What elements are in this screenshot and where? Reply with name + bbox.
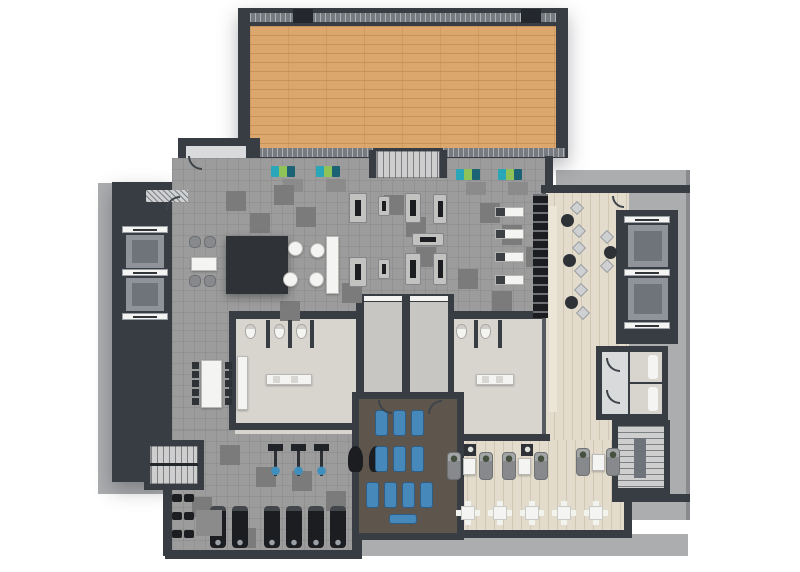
yoga-mat bbox=[402, 482, 415, 508]
table-chair bbox=[225, 371, 232, 378]
plant-table bbox=[464, 444, 476, 456]
dining-top-wall bbox=[452, 434, 550, 441]
bench-cube bbox=[287, 166, 295, 177]
weight-bench bbox=[495, 207, 524, 217]
yoga-mat bbox=[384, 482, 397, 508]
lounge-top-wall bbox=[541, 185, 690, 193]
machine-core bbox=[382, 201, 386, 211]
core-left-floor bbox=[364, 302, 402, 392]
dining-table bbox=[461, 506, 475, 520]
floor-tile bbox=[280, 301, 300, 321]
stretch-platform bbox=[226, 236, 288, 294]
shower-closet bbox=[237, 356, 248, 410]
lobby-table bbox=[604, 246, 617, 259]
yoga-mat bbox=[393, 446, 406, 472]
dumbbell bbox=[184, 494, 194, 502]
machine-core bbox=[382, 264, 386, 274]
table-chair bbox=[225, 362, 232, 369]
side-table bbox=[463, 458, 476, 475]
court-stair-wall-left bbox=[369, 150, 376, 178]
treadmill bbox=[286, 506, 302, 548]
cafe-table bbox=[288, 241, 303, 256]
wing-stair-rail bbox=[150, 463, 198, 466]
table-chair bbox=[225, 398, 232, 405]
elevator-car-pad bbox=[634, 231, 662, 261]
elevator-plate bbox=[122, 226, 168, 233]
stall-partition bbox=[266, 320, 270, 348]
dumbbell bbox=[172, 512, 182, 520]
dumbbell-rack bbox=[533, 194, 548, 318]
elevator-plate bbox=[122, 269, 168, 276]
elevator-plate bbox=[624, 322, 670, 329]
court-column-right bbox=[521, 9, 541, 23]
toilet bbox=[456, 324, 467, 339]
lounge-bench bbox=[549, 206, 557, 412]
stairwell-spine bbox=[634, 438, 646, 478]
stall-partition bbox=[450, 320, 454, 348]
yoga-mat bbox=[393, 410, 406, 436]
court-column-left bbox=[293, 9, 313, 23]
stall-partition bbox=[288, 320, 292, 348]
gym-bottom-wall bbox=[165, 550, 362, 559]
floor-tile bbox=[220, 445, 240, 465]
floor-plan bbox=[0, 0, 800, 572]
juice-counter bbox=[326, 236, 339, 294]
table-chair bbox=[225, 389, 232, 396]
yoga-mat bbox=[420, 482, 433, 508]
sink bbox=[482, 376, 489, 383]
sink bbox=[291, 376, 298, 383]
yoga-mat bbox=[375, 410, 388, 436]
machine-core bbox=[355, 200, 361, 216]
toilet bbox=[480, 324, 491, 339]
plant-table bbox=[521, 444, 533, 456]
bench-cube bbox=[464, 169, 472, 180]
spin-bike bbox=[268, 444, 283, 476]
bench-mat bbox=[326, 179, 346, 192]
court-floor bbox=[250, 26, 556, 148]
yoga-mat bbox=[366, 482, 379, 508]
bench-cube bbox=[279, 166, 287, 177]
bench-cube bbox=[456, 169, 464, 180]
side-table bbox=[592, 454, 605, 471]
bench-cube bbox=[472, 169, 480, 180]
chaise-lounge bbox=[479, 452, 493, 480]
table-chair bbox=[192, 389, 199, 396]
lounge-table bbox=[561, 214, 574, 227]
dumbbell bbox=[172, 530, 182, 538]
instructor-mat bbox=[389, 514, 417, 524]
coffee-table bbox=[191, 257, 217, 271]
wing-closet bbox=[146, 190, 188, 202]
armchair bbox=[189, 236, 201, 248]
bottom-right-wall bbox=[612, 494, 690, 502]
treadmill bbox=[232, 506, 248, 548]
bench-cube bbox=[506, 169, 514, 180]
squat-machine bbox=[348, 446, 363, 472]
sink bbox=[496, 376, 503, 383]
bench-cube bbox=[498, 169, 506, 180]
chaise-lounge bbox=[606, 448, 620, 476]
table-chair bbox=[192, 380, 199, 387]
chaise-lounge bbox=[502, 452, 516, 480]
floor-tile bbox=[250, 213, 270, 233]
yoga-mat bbox=[411, 446, 424, 472]
stall-partition bbox=[498, 320, 502, 348]
floor-tile bbox=[296, 207, 316, 227]
elevator-plate bbox=[624, 269, 670, 276]
armchair bbox=[204, 236, 216, 248]
elevator-car-pad bbox=[132, 283, 158, 306]
stall-partition bbox=[310, 320, 314, 348]
locker-bottom-wall-left bbox=[229, 423, 361, 430]
treadmill bbox=[330, 506, 346, 548]
dining-table bbox=[493, 506, 507, 520]
bench-cube bbox=[332, 166, 340, 177]
core-left-doorplate bbox=[364, 296, 402, 301]
toilet bbox=[245, 324, 256, 339]
floor-tile bbox=[458, 269, 478, 289]
elevator-car-pad bbox=[132, 240, 158, 263]
chaise-lounge bbox=[576, 448, 590, 476]
bench-cube bbox=[514, 169, 522, 180]
dining-table bbox=[557, 506, 571, 520]
machine-core bbox=[438, 260, 443, 278]
machine-core bbox=[410, 200, 416, 216]
floor-tile bbox=[226, 191, 246, 211]
window-band-left bbox=[247, 148, 373, 157]
treadmill bbox=[308, 506, 324, 548]
bench-mat bbox=[508, 182, 528, 195]
bench-cube bbox=[271, 166, 279, 177]
terrace-right-edge bbox=[686, 170, 690, 520]
stall-partition bbox=[474, 320, 478, 348]
weight-bench bbox=[495, 275, 524, 285]
chaise-lounge bbox=[447, 452, 461, 480]
table-chair bbox=[192, 362, 199, 369]
cafe-table bbox=[283, 272, 298, 287]
sink bbox=[273, 376, 280, 383]
yoga-mat bbox=[411, 410, 424, 436]
dumbbell bbox=[184, 512, 194, 520]
core-right-floor bbox=[410, 302, 448, 392]
cafe-table bbox=[309, 272, 324, 287]
floor-tile bbox=[492, 291, 512, 311]
toilet bbox=[274, 324, 285, 339]
bench-cube bbox=[324, 166, 332, 177]
lounge-table bbox=[563, 254, 576, 267]
treadmill bbox=[264, 506, 280, 548]
table-chair bbox=[225, 380, 232, 387]
machine-core bbox=[410, 260, 416, 278]
machine-core bbox=[438, 201, 443, 217]
bench-mat bbox=[466, 182, 486, 195]
dumbbell-mat bbox=[196, 510, 222, 536]
massage-table bbox=[648, 355, 658, 379]
toilet bbox=[296, 324, 307, 339]
dumbbell bbox=[184, 530, 194, 538]
dining-table bbox=[525, 506, 539, 520]
massage-table bbox=[648, 387, 658, 411]
armchair bbox=[189, 275, 201, 287]
cafe-table bbox=[310, 243, 325, 258]
spin-bike bbox=[291, 444, 306, 476]
court-stairs bbox=[376, 151, 440, 178]
communal-table bbox=[201, 360, 222, 408]
table-chair bbox=[192, 371, 199, 378]
elevator-car-pad bbox=[634, 284, 662, 314]
chaise-lounge bbox=[534, 452, 548, 480]
weight-bench bbox=[495, 229, 524, 239]
yoga-mat bbox=[375, 446, 388, 472]
dumbbell bbox=[172, 494, 182, 502]
lounge-table bbox=[565, 296, 578, 309]
machine-core bbox=[355, 264, 361, 280]
floor-tile bbox=[274, 185, 294, 205]
weight-bench bbox=[495, 252, 524, 262]
elevator-plate bbox=[122, 313, 168, 320]
bench-cube bbox=[316, 166, 324, 177]
core-right-doorplate bbox=[410, 296, 448, 301]
machine-core bbox=[420, 237, 436, 242]
side-table bbox=[518, 458, 531, 475]
elevator-plate bbox=[624, 216, 670, 223]
dining-table bbox=[589, 506, 603, 520]
table-chair bbox=[192, 398, 199, 405]
spin-bike bbox=[314, 444, 329, 476]
armchair bbox=[204, 275, 216, 287]
court-stair-wall-right bbox=[440, 150, 447, 178]
